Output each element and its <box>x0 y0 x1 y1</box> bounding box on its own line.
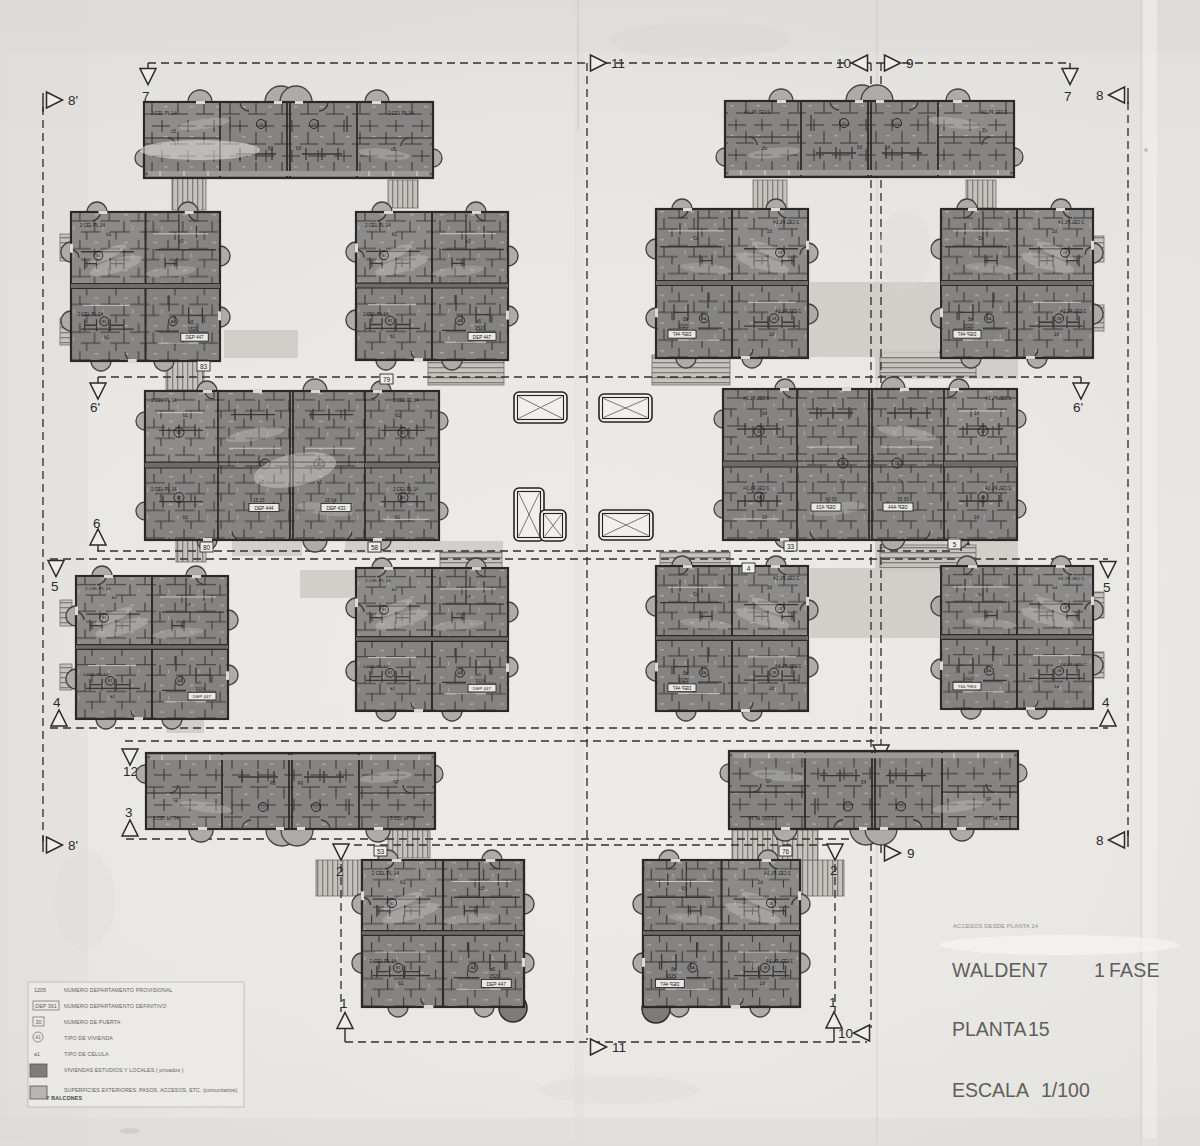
svg-text:76: 76 <box>782 848 790 855</box>
svg-text:ESCALA: ESCALA <box>952 1079 1029 1101</box>
svg-text:NUMERO DE PUERTA: NUMERO DE PUERTA <box>64 1019 121 1025</box>
svg-text:4: 4 <box>53 695 61 710</box>
svg-text:TIPO DE CELULA: TIPO DE CELULA <box>64 1051 109 1057</box>
svg-text:1: 1 <box>1094 959 1105 981</box>
svg-text:1/100: 1/100 <box>1041 1079 1090 1101</box>
svg-text:5: 5 <box>953 541 957 548</box>
svg-text:9: 9 <box>906 56 914 71</box>
svg-text:15: 15 <box>1028 1018 1050 1040</box>
svg-text:79: 79 <box>383 376 391 383</box>
svg-text:NUMERO DEPARTAMENTO PROVISIONA: NUMERO DEPARTAMENTO PROVISIONAL <box>64 987 173 993</box>
svg-text:6': 6' <box>1073 400 1083 415</box>
svg-text:SUPERFICIES EXTERIORES: PASOS,: SUPERFICIES EXTERIORES: PASOS, ACCESOS, … <box>64 1087 237 1093</box>
svg-text:3: 3 <box>125 805 133 820</box>
svg-text:Y BALCONES: Y BALCONES <box>46 1095 82 1101</box>
svg-text:33: 33 <box>787 543 795 550</box>
svg-text:2: 2 <box>336 864 344 879</box>
svg-text:11: 11 <box>612 1040 626 1055</box>
svg-text:11: 11 <box>611 56 625 71</box>
svg-text:5: 5 <box>1103 580 1111 595</box>
svg-text:83: 83 <box>200 363 208 370</box>
svg-text:2: 2 <box>830 863 838 878</box>
svg-text:WALDEN: WALDEN <box>952 959 1036 981</box>
svg-text:A1: A1 <box>35 1035 41 1040</box>
svg-text:53: 53 <box>377 848 385 855</box>
svg-text:ACCESOS DESDE PLANTA 14: ACCESOS DESDE PLANTA 14 <box>953 923 1039 929</box>
svg-text:6': 6' <box>90 400 100 415</box>
svg-text:1205: 1205 <box>34 987 46 993</box>
svg-text:8': 8' <box>68 93 78 108</box>
svg-text:6: 6 <box>93 516 101 531</box>
svg-text:1: 1 <box>829 995 837 1010</box>
svg-text:8: 8 <box>1096 88 1104 103</box>
svg-text:30: 30 <box>36 1019 42 1025</box>
svg-text:a1: a1 <box>34 1051 40 1057</box>
svg-text:9: 9 <box>907 846 915 861</box>
svg-text:4: 4 <box>1102 695 1110 710</box>
svg-text:DEP 361: DEP 361 <box>35 1003 56 1009</box>
svg-text:8: 8 <box>1096 833 1104 848</box>
svg-text:4: 4 <box>747 565 751 572</box>
svg-text:58: 58 <box>371 544 379 551</box>
svg-text:80: 80 <box>203 544 211 551</box>
svg-text:7: 7 <box>1064 89 1072 104</box>
svg-text:8': 8' <box>68 838 78 853</box>
svg-text:7: 7 <box>1037 959 1048 981</box>
svg-text:FASE: FASE <box>1109 959 1160 981</box>
svg-text:TIPO DE VIVIENDA: TIPO DE VIVIENDA <box>64 1035 113 1041</box>
svg-text:PLANTA: PLANTA <box>952 1018 1026 1040</box>
svg-text:NUMERO DEPARTAMENTO DEFINITIVO: NUMERO DEPARTAMENTO DEFINITIVO <box>64 1003 166 1009</box>
svg-text:1: 1 <box>340 996 348 1011</box>
svg-text:VIVIENDAS ESTUDIOS Y LOCALE: VIVIENDAS ESTUDIOS Y LOCALES ( privados … <box>64 1067 184 1073</box>
svg-text:10: 10 <box>836 56 851 71</box>
svg-text:5: 5 <box>51 579 59 594</box>
